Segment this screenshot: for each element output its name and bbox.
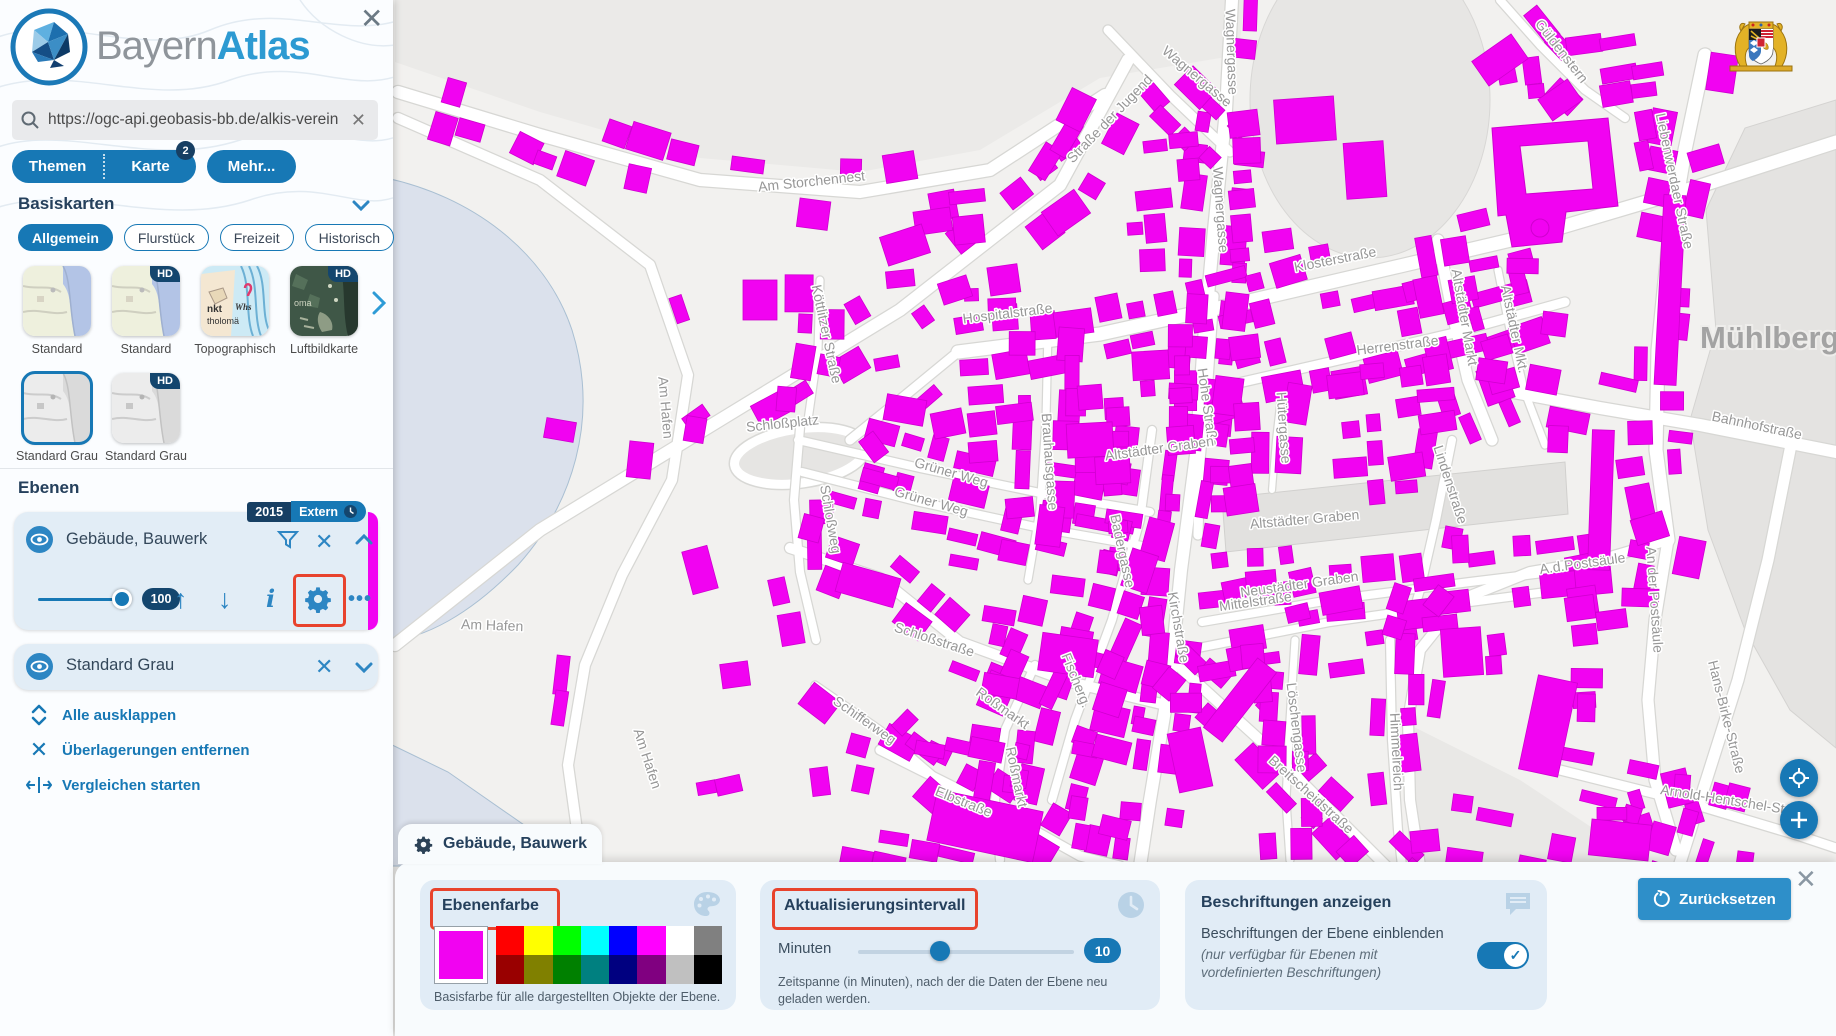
layer-settings-icon[interactable]	[304, 585, 332, 613]
interval-card-caption: Zeitspanne (in Minuten), nach der die Da…	[778, 974, 1138, 1008]
layer-card-standard-grau: Standard Grau ✕	[14, 644, 378, 690]
settings-panel-tab[interactable]: Gebäude, Bauwerk	[398, 824, 602, 864]
palette-swatch[interactable]	[553, 926, 581, 955]
svg-text:Whs: Whs	[235, 302, 252, 312]
color-card-caption: Basisfarbe für alle dargestellten Objekt…	[434, 990, 720, 1004]
basemap-thumb-label: Standard	[101, 342, 191, 356]
color-palette	[496, 926, 722, 984]
zoom-in-button[interactable]	[1780, 801, 1818, 839]
bavaria-coat-of-arms	[1724, 14, 1798, 76]
layer-title: Gebäude, Bauwerk	[66, 530, 207, 549]
action-label: Vergleichen starten	[62, 777, 200, 794]
basemap-thumb-label: Standard Grau	[12, 449, 102, 463]
palette-swatch[interactable]	[553, 955, 581, 984]
basemap-thumb-standard[interactable]	[23, 266, 91, 336]
karte-count-badge: 2	[176, 141, 195, 160]
palette-swatch[interactable]	[609, 926, 637, 955]
opacity-slider-knob[interactable]	[112, 589, 132, 609]
palette-swatch[interactable]	[524, 955, 552, 984]
basemap-filter-chips: AllgemeinFlurstückFreizeitHistorisch	[18, 224, 394, 251]
labels-card: Beschriftungen anzeigen Beschriftungen d…	[1185, 880, 1547, 1010]
action-close[interactable]: ✕Überlagerungen entfernen	[0, 735, 250, 765]
palette-swatch[interactable]	[581, 926, 609, 955]
refresh-interval-card: Aktualisierungsintervall Minuten 10 Zeit…	[760, 880, 1160, 1010]
selected-color-swatch[interactable]	[434, 926, 488, 984]
basemap-thumb-standard-grau[interactable]	[23, 373, 91, 443]
year-badge: 2015	[247, 502, 291, 522]
tab-themen[interactable]: Themen	[12, 150, 103, 183]
plus-icon	[1789, 810, 1809, 830]
interval-slider[interactable]	[858, 950, 1074, 954]
palette-swatch[interactable]	[581, 955, 609, 984]
layer-collapse-icon[interactable]	[353, 530, 375, 550]
reset-icon	[1653, 890, 1671, 908]
search-input[interactable]: https://ogc-api.geobasis-bb.de/alkis-ver…	[48, 111, 347, 129]
app-title: BayernAtlas	[96, 24, 310, 69]
expand-icon	[26, 702, 52, 728]
basemap-filter-freizeit[interactable]: Freizeit	[220, 224, 294, 251]
basemap-filter-allgemein[interactable]: Allgemein	[18, 224, 113, 251]
palette-swatch[interactable]	[694, 926, 722, 955]
compare-icon	[26, 777, 52, 793]
layer-filter-icon[interactable]	[276, 528, 300, 552]
hd-badge: HD	[150, 373, 180, 389]
layer-badges: 2015Extern	[247, 501, 366, 522]
basemap-thumb-label: Standard Grau	[101, 449, 191, 463]
sidebar-close-icon[interactable]: ✕	[352, 0, 391, 37]
tab-mehr[interactable]: Mehr...	[207, 150, 296, 183]
layer-move-down-icon[interactable]: ↓	[218, 584, 232, 615]
basemap-thumb-topographisch[interactable]: nkt tholomä Whs	[201, 266, 269, 336]
basemap-thumb-standard[interactable]: HD	[112, 266, 180, 336]
search-clear-icon[interactable]: ✕	[347, 110, 370, 131]
layer-expand-icon[interactable]	[353, 657, 375, 677]
bayernatlas-logo	[10, 8, 88, 86]
layer-visibility-icon[interactable]	[26, 526, 53, 553]
svg-text:oma: oma	[294, 298, 312, 308]
crosshair-icon	[1788, 767, 1810, 789]
palette-swatch[interactable]	[666, 926, 694, 955]
action-expand[interactable]: Alle ausklappen	[0, 700, 176, 730]
labels-card-title: Beschriftungen anzeigen	[1201, 894, 1391, 912]
layer-card-gebaeude-bauwerk: 2015Extern Gebäude, Bauwerk ✕ 100 ↑ ↓ i …	[14, 512, 378, 630]
palette-swatch[interactable]	[666, 955, 694, 984]
clock-badge-icon	[343, 504, 358, 519]
palette-swatch[interactable]	[694, 955, 722, 984]
layer-visibility-icon[interactable]	[26, 653, 53, 680]
palette-swatch[interactable]	[524, 926, 552, 955]
action-compare[interactable]: Vergleichen starten	[0, 770, 200, 800]
basemap-filter-flurstück[interactable]: Flurstück	[124, 224, 209, 251]
layers-heading: Ebenen	[18, 478, 79, 498]
layer-title: Standard Grau	[66, 656, 174, 675]
basemap-thumb-luftbildkarte[interactable]: omaHD	[290, 266, 358, 336]
close-icon: ✕	[26, 737, 52, 763]
labels-toggle[interactable]: ✓	[1477, 942, 1529, 969]
color-card-title: Ebenenfarbe	[442, 897, 539, 915]
palette-swatch[interactable]	[637, 926, 665, 955]
svg-text:Wagnergasse: Wagnergasse	[1223, 9, 1242, 96]
labels-toggle-knob: ✓	[1504, 944, 1527, 967]
interval-slider-knob[interactable]	[930, 941, 950, 961]
svg-text:Mühlberg: Mühlberg	[1700, 320, 1836, 355]
bayernatlas-app: Am StorchennestWagnergasseWagnergasseWag…	[0, 0, 1836, 1036]
layer-color-card: Ebenenfarbe Basisfarbe für alle dargeste…	[420, 880, 736, 1010]
reset-label: Zurücksetzen	[1679, 891, 1776, 908]
section-divider	[0, 468, 393, 469]
interval-unit-label: Minuten	[778, 940, 831, 957]
clock-icon	[1116, 890, 1146, 920]
sidebar: ✕ BayernAtlas https://ogc-api.geobasis-b…	[0, 0, 393, 1036]
basemap-thumb-label: Standard	[12, 342, 102, 356]
geolocate-button[interactable]	[1780, 759, 1818, 797]
hd-badge: HD	[328, 266, 358, 282]
hd-badge: HD	[150, 266, 180, 282]
interval-card-title: Aktualisierungsintervall	[784, 897, 965, 915]
layer-settings-panel: ✕ Ebenenfarbe Basisfarbe für alle darges…	[395, 862, 1836, 1036]
action-label: Überlagerungen entfernen	[62, 742, 250, 759]
basemap-thumb-label: Topographisch	[190, 342, 280, 356]
search-bar[interactable]: https://ogc-api.geobasis-bb.de/alkis-ver…	[12, 100, 378, 140]
basemap-thumb-standard-grau[interactable]: HD	[112, 373, 180, 443]
extern-badge: Extern	[291, 501, 366, 522]
labels-toggle-note: (nur verfügbar für Ebenen mit vordefinie…	[1201, 946, 1451, 982]
opacity-slider[interactable]	[38, 598, 122, 601]
basemaps-heading: Basiskarten	[18, 194, 114, 214]
tab-group: Themen Karte 2	[12, 150, 196, 183]
gear-icon	[414, 835, 433, 854]
chat-bubble-icon	[1503, 890, 1533, 918]
palette-swatch[interactable]	[637, 955, 665, 984]
layer-remove-icon[interactable]: ✕	[315, 654, 333, 680]
basemap-thumb-label: Luftbildkarte	[279, 342, 369, 356]
labels-toggle-label: Beschriftungen der Ebene einblenden	[1201, 926, 1444, 942]
panel-tab-title: Gebäude, Bauwerk	[443, 835, 587, 853]
search-icon	[20, 110, 40, 130]
palette-swatch[interactable]	[496, 955, 524, 984]
panel-close-icon[interactable]: ✕	[1795, 864, 1817, 895]
action-label: Alle ausklappen	[62, 707, 176, 724]
selected-color-fill	[439, 931, 483, 979]
palette-swatch[interactable]	[496, 926, 524, 955]
svg-text:Am Hafen: Am Hafen	[461, 616, 524, 634]
layer-info-icon[interactable]: i	[266, 584, 275, 613]
palette-swatch[interactable]	[609, 955, 637, 984]
svg-text:nkt: nkt	[207, 304, 223, 315]
svg-text:tholomä: tholomä	[207, 316, 239, 326]
layer-move-up-icon[interactable]: ↑	[174, 584, 188, 615]
thumbnails-scroll-right-icon[interactable]	[370, 290, 388, 316]
interval-value-badge: 10	[1084, 938, 1121, 963]
palette-icon	[692, 890, 722, 918]
basemaps-collapse-icon[interactable]	[350, 194, 374, 218]
basemap-filter-historisch[interactable]: Historisch	[305, 224, 394, 251]
layer-remove-icon[interactable]: ✕	[315, 529, 333, 555]
layer-more-icon[interactable]: •••	[348, 588, 372, 611]
reset-button[interactable]: Zurücksetzen	[1638, 878, 1791, 920]
